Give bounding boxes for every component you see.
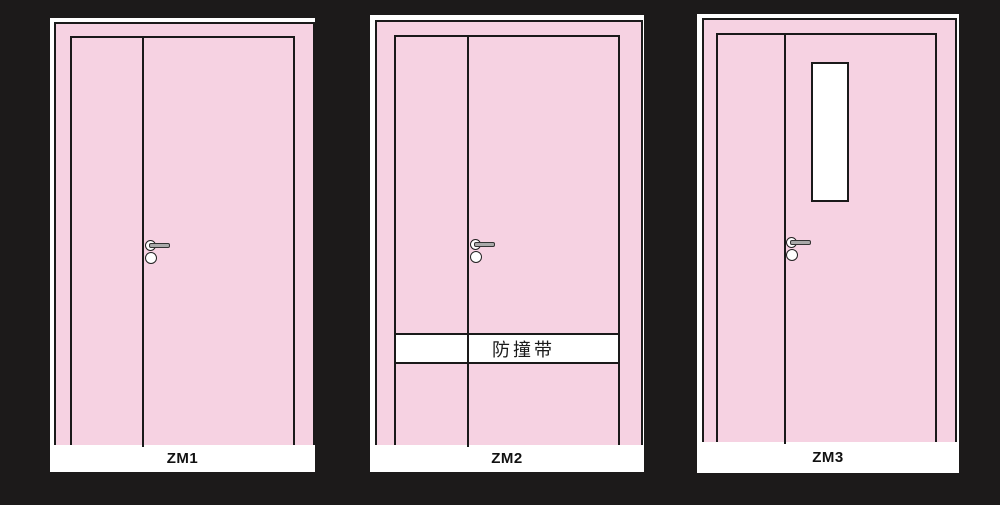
handle-lever: [474, 242, 495, 247]
door-label: ZM3: [697, 442, 959, 473]
door-card-zm1: ZM1: [50, 18, 315, 472]
door-leaves: [70, 36, 295, 447]
bump-guard-band: 防撞带: [396, 333, 618, 364]
door-handle: [145, 240, 172, 265]
door-handle: [786, 237, 813, 262]
door-leaves: [716, 33, 937, 444]
handle-lever: [790, 240, 811, 245]
handle-lever: [149, 243, 170, 248]
handle-knob: [786, 249, 798, 261]
vision-panel: [811, 62, 849, 202]
door-frame: 防撞带: [375, 20, 643, 449]
door-label: ZM2: [370, 445, 644, 472]
leaf-divider: [467, 37, 469, 447]
door-leaves: 防撞带: [394, 35, 620, 447]
door-card-zm3: ZM3: [697, 14, 959, 473]
handle-knob: [470, 251, 482, 263]
door-frame: [702, 18, 957, 446]
door-card-zm2: 防撞带 ZM2: [370, 15, 644, 472]
leaf-divider: [142, 38, 144, 447]
door-frame: [54, 22, 315, 449]
door-handle: [470, 239, 497, 264]
bump-guard-label: 防撞带: [466, 335, 581, 362]
door-label: ZM1: [50, 445, 315, 472]
handle-knob: [145, 252, 157, 264]
